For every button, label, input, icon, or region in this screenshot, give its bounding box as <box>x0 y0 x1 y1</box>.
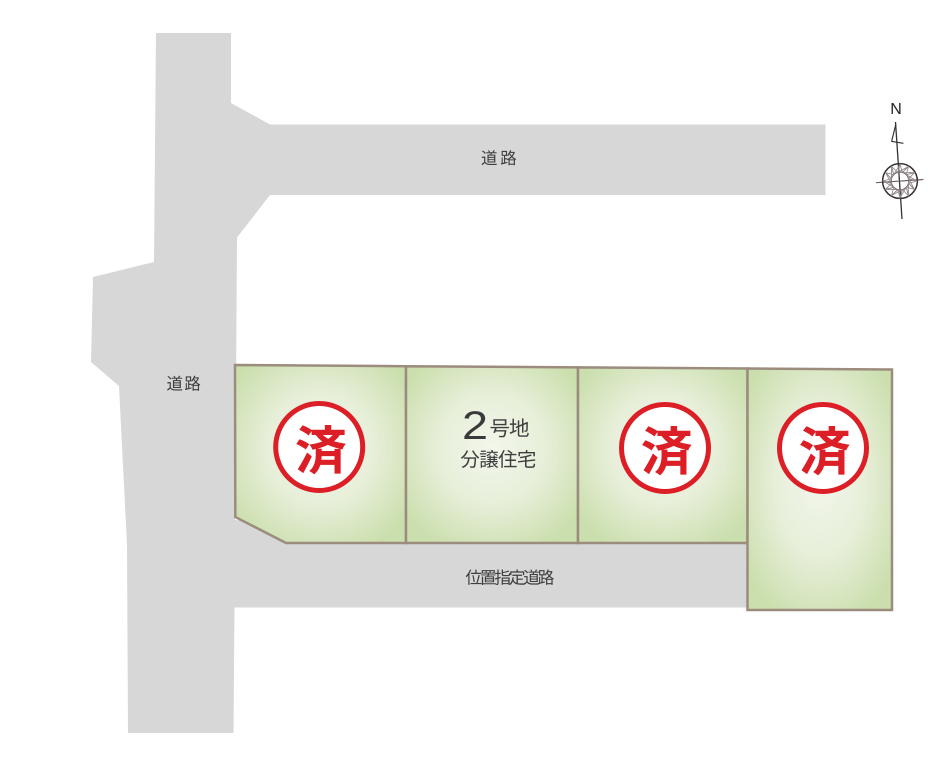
svg-text:2: 2 <box>462 404 488 448</box>
svg-text:N: N <box>890 101 902 118</box>
